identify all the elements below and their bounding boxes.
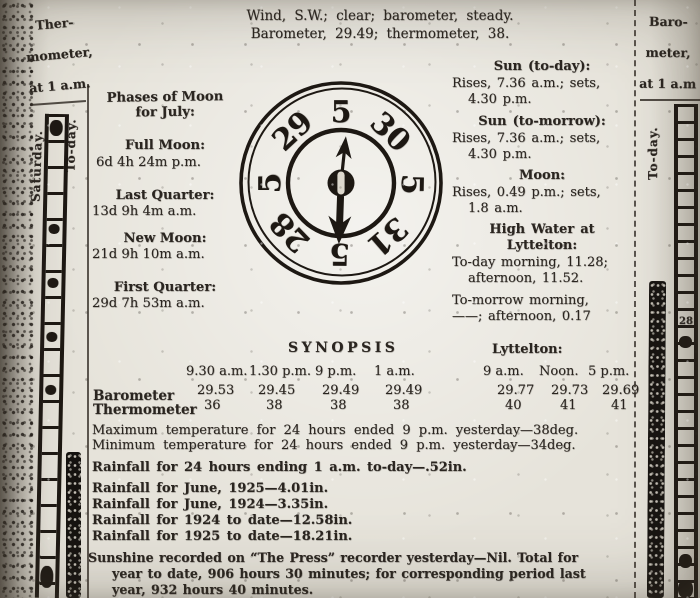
rainfall-line: Rainfall for 24 hours ending 1 a.m. to-d… [92,460,467,475]
high-water-title: High Water at [452,223,632,236]
dial-number: 31 [360,209,414,263]
sunshine-line: year to date, 906 hours 30 minutes; for … [112,566,586,581]
lyttelton-thermometer-value: 41 [560,398,577,413]
moon-phase-name: First Quarter: [90,280,240,295]
scale-smudge [45,385,56,395]
high-water-today: To-day morning, 11.28; [452,256,608,269]
dial-number: 5 [394,173,429,194]
lyttelton-col-header: 5 p.m. [588,364,629,379]
thermometer-value: 38 [266,398,283,413]
sunshine-line: Sunshine recorded on “The Press” recorde… [88,550,578,565]
high-water-tomorrow-pm: ——; afternoon, 0.17 [452,310,591,323]
sun-today-title: Sun (to-day): [452,60,632,73]
lyttelton-thermometer-value: 41 [611,398,628,413]
lyttelton-col-header: 9 a.m. [483,364,524,379]
synopsis-col-header: 1.30 p.m. [249,364,311,379]
moon-rises: Rises, 0.49 p.m.; sets, [452,186,601,199]
thermometer-row-label: Thermometer [93,402,197,418]
dial-number: 29 [266,104,320,158]
scale-smudge [679,554,692,568]
barometer-value: 29.53 [197,383,234,398]
readings-summary-line: Barometer, 29.49; thermometer, 38. [180,26,580,42]
thermometer-value: 36 [204,398,221,413]
lyttelton-barometer-value: 29.73 [551,383,588,398]
left-column-rule [87,84,89,598]
scale-smudge [678,580,693,598]
moon-title: Moon: [452,169,632,182]
barometer-dial: 5 30 5 31 5 28 5 29 [231,72,451,294]
newspaper-weather-page: Ther- mometer, at 1 a.m. Saturday. To-da… [0,0,700,598]
rainfall-line: Rainfall for June, 1925—4.01in. [92,481,328,496]
left-margin-thermometer-title: Ther- mometer, at 1 a.m. [22,5,92,103]
lyttelton-thermometer-value: 40 [505,398,522,413]
moon-phases-subtitle: for July: [90,104,240,121]
moon-phase-name: New Moon: [90,231,240,246]
right-margin-barometer-title: Baro- meter, at 1 a.m [636,6,700,100]
barometer-scale-28-mark: 28 [678,316,694,327]
scale-smudge [40,566,53,588]
scale-smudge [679,336,692,348]
sun-today-rises: Rises, 7.36 a.m.; sets, [452,77,600,90]
moon-phase-name: Last Quarter: [90,188,240,203]
rainfall-line: Rainfall for 1925 to date—18.21in. [92,529,352,544]
dial-number: 5 [331,95,352,130]
thermometer-value: 38 [393,398,410,413]
moon-phase-time: 6d 4h 24m p.m. [96,155,201,170]
moon-phase-time: 29d 7h 53m a.m. [92,296,205,311]
rainfall-line: Rainfall for 1924 to date—12.58in. [92,513,352,528]
moon-sets: 1.8 a.m. [468,202,523,215]
right-margin-col-today-label: To-day. [646,112,660,180]
synopsis-col-header: 1 a.m. [374,364,415,379]
moon-phases-block: Phases of Moon for July: [90,89,240,121]
barometer-scale: 28 [674,104,698,598]
barometer-value: 29.49 [385,383,422,398]
right-margin-title-line: Baro- [636,6,700,38]
barometer-value: 29.45 [258,383,295,398]
dial-hub-slot [337,172,344,195]
right-margin-title-line: meter, [636,37,700,69]
right-margin-title-line: at 1 a.m [636,68,700,100]
scale-smudge [48,224,59,234]
moon-phase-name: Full Moon: [90,138,240,153]
sun-today-sets: 4.30 p.m. [468,93,532,106]
right-margin-divider [640,99,700,101]
sun-tomorrow-sets: 4.30 p.m. [468,148,532,161]
sun-tomorrow-title: Sun (to-morrow): [452,115,632,128]
moon-phase-time: 13d 9h 4m a.m. [92,204,196,219]
barometer-mercury-bar [647,281,666,598]
barometer-value: 29.49 [322,383,359,398]
lyttelton-title: Lyttelton: [492,342,562,357]
high-water-today-pm: afternoon, 11.52. [468,272,583,285]
high-water-subtitle: Lyttelton: [452,239,632,252]
dial-number: 30 [363,105,417,159]
min-temperature-line: Minimum temperature for 24 hours ended 9… [92,438,576,453]
moon-phases-title: Phases of Moon [90,89,240,106]
dial-number: 5 [253,173,288,194]
sunshine-line: year, 932 hours 40 minutes. [112,582,313,597]
synopsis-col-header: 9 p.m. [315,364,356,379]
thermometer-value: 38 [330,398,347,413]
left-margin-title-line: at 1 a.m. [27,67,91,103]
dial-number: 28 [263,205,317,259]
conditions-summary-line: Wind, S.W.; clear; barometer, steady. [180,8,580,24]
synopsis-title: SYNOPSIS [288,340,398,356]
moon-phase-time: 21d 9h 10m a.m. [92,247,205,262]
synopsis-col-header: 9.30 a.m. [186,364,247,379]
thermometer-mercury-bar [66,452,81,598]
lyttelton-barometer-value: 29.77 [497,383,534,398]
high-water-tomorrow: To-morrow morning, [452,294,589,307]
sun-tomorrow-rises: Rises, 7.36 a.m.; sets, [452,132,600,145]
lyttelton-col-header: Noon. [539,364,579,379]
scale-smudge [46,332,57,342]
rainfall-line: Rainfall for June, 1924—3.35in. [92,497,328,512]
scale-smudge [47,278,58,288]
max-temperature-line: Maximum temperature for 24 hours ended 9… [92,423,578,438]
scale-smudge [50,120,63,136]
